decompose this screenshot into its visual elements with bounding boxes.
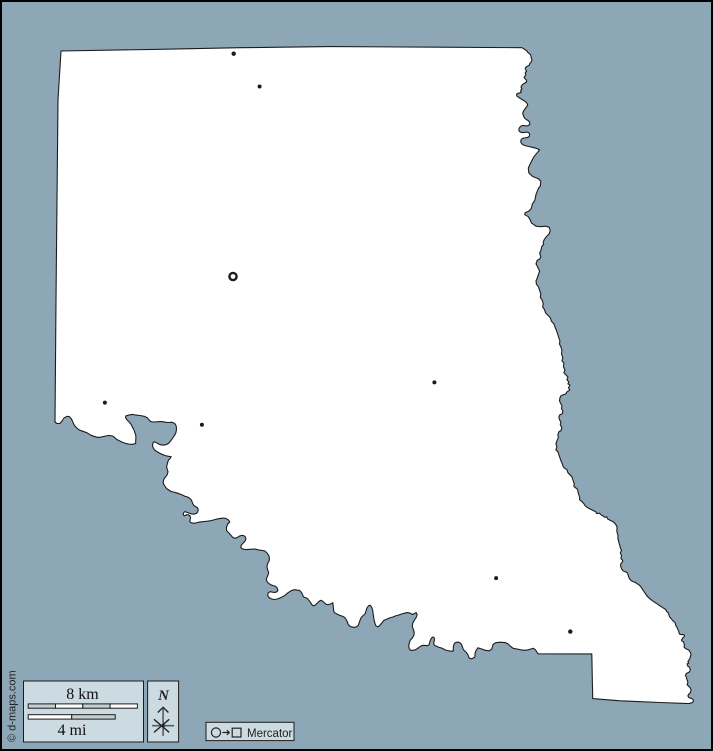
svg-text:N: N	[157, 688, 170, 704]
svg-text:4 mi: 4 mi	[58, 722, 87, 739]
svg-text:© d-maps.com: © d-maps.com	[7, 670, 19, 742]
svg-text:Mercator: Mercator	[247, 728, 293, 740]
svg-text:8 km: 8 km	[66, 686, 99, 703]
